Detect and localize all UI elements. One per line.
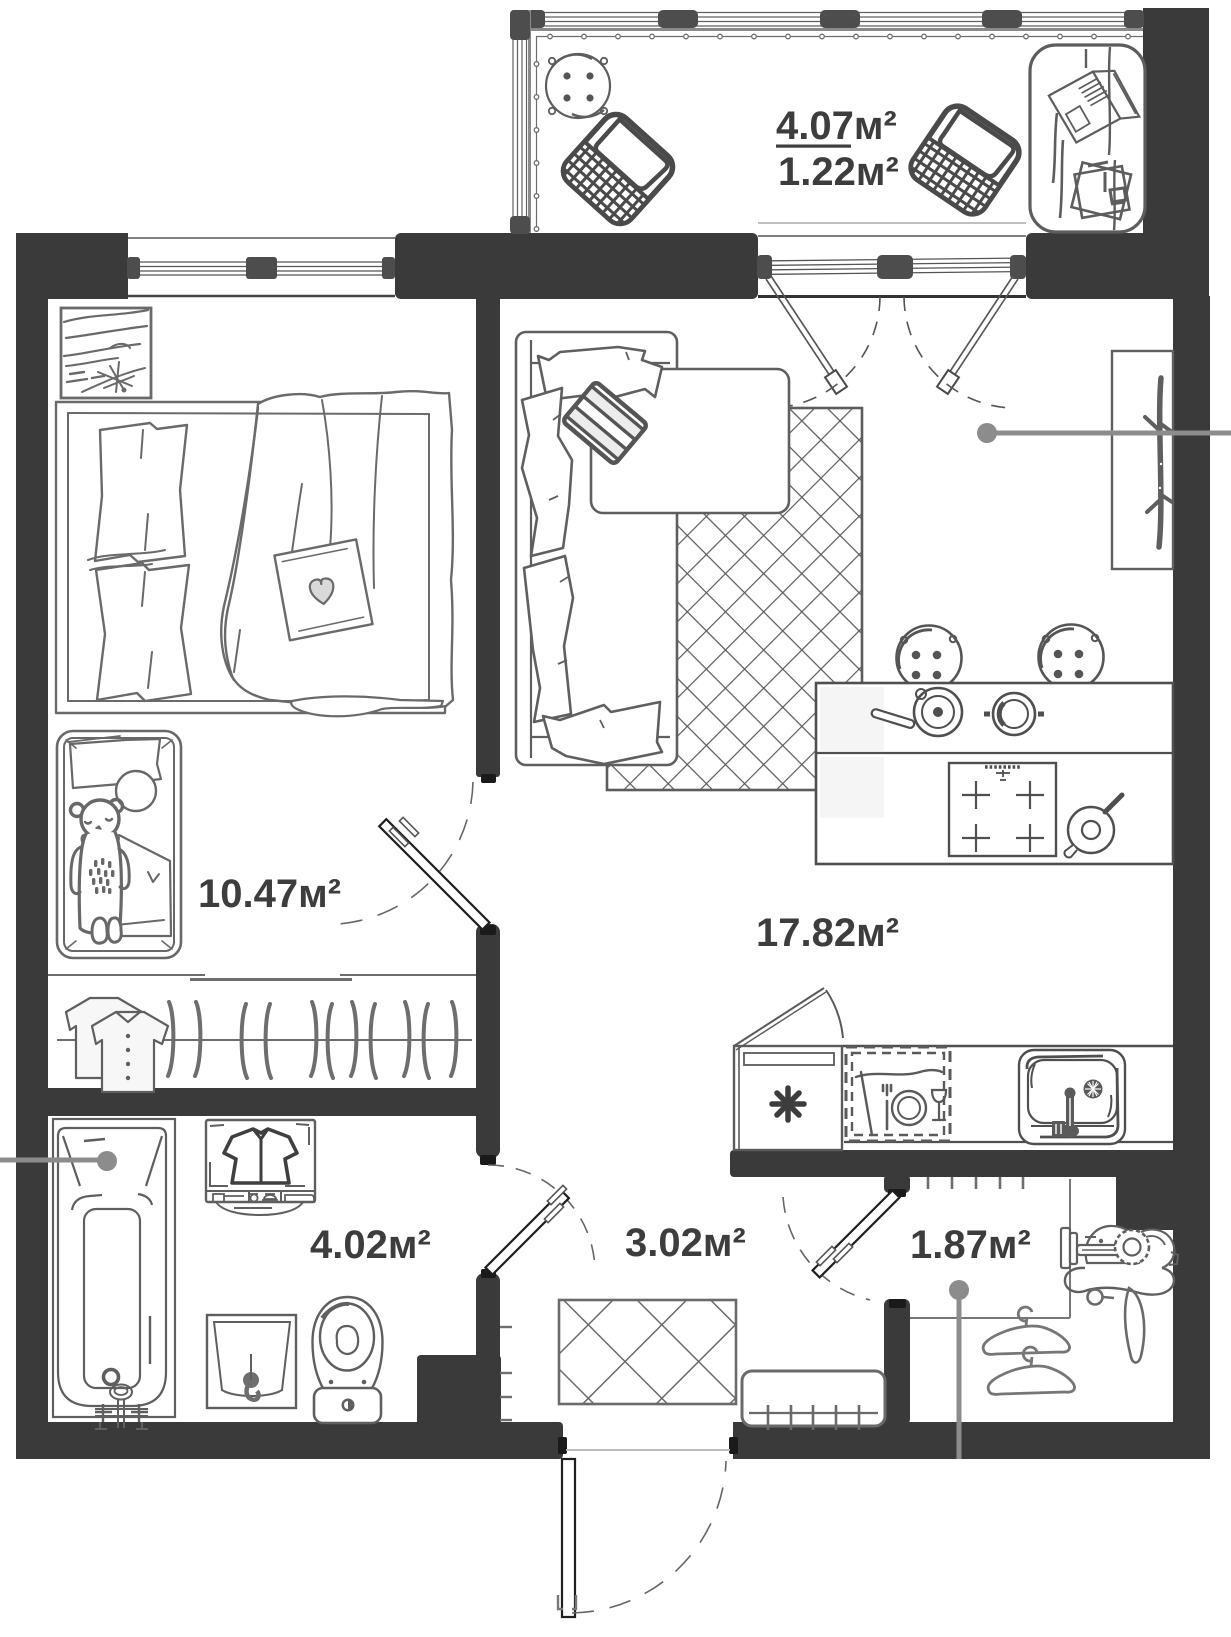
svg-text:1.87м²: 1.87м² [910,1223,1031,1267]
svg-text:4.02м²: 4.02м² [310,1223,431,1267]
svg-text:1.22м²: 1.22м² [778,150,899,194]
svg-text:17.82м²: 17.82м² [756,911,899,955]
svg-text:10.47м²: 10.47м² [198,872,341,916]
svg-text:3.02м²: 3.02м² [625,1221,746,1265]
svg-text:4.07м²: 4.07м² [776,104,897,148]
